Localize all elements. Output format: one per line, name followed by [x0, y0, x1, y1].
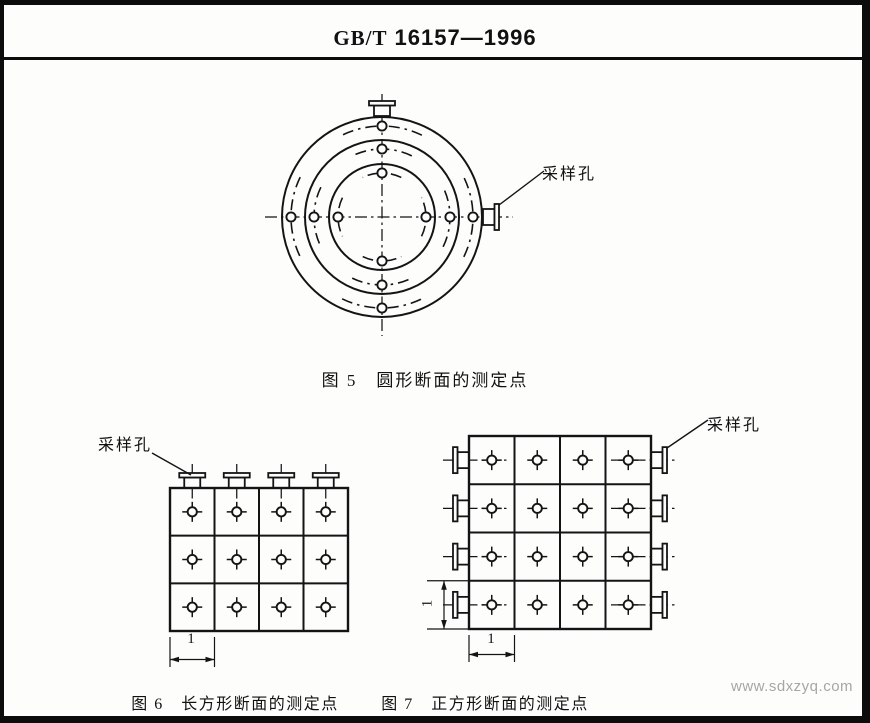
leader-line — [499, 171, 544, 205]
fig6-sampling-port-label: 采样孔 — [98, 431, 152, 455]
measurement-point — [377, 168, 386, 177]
sampling-port-icon — [651, 544, 667, 570]
sampling-port-icon — [453, 495, 469, 521]
measurement-point — [573, 498, 593, 518]
dimension-arrow — [506, 652, 515, 658]
measurement-point — [316, 502, 336, 522]
sampling-port-icon — [453, 447, 469, 473]
measurement-point — [527, 498, 547, 518]
measurement-point — [573, 595, 593, 615]
measurement-point — [271, 597, 291, 617]
sampling-port-icon — [453, 544, 469, 570]
measurement-point — [618, 498, 638, 518]
measurement-point — [316, 597, 336, 617]
measurement-point — [482, 547, 502, 567]
sampling-port-icon — [369, 101, 395, 116]
dimension-arrow — [206, 657, 215, 663]
standard-header: GB/T16157—1996 — [0, 25, 870, 51]
fig5-sampling-port-label: 采样孔 — [542, 160, 596, 184]
fig6-dimension-value: 1 — [178, 631, 204, 648]
top-border — [0, 0, 870, 5]
sampling-port-icon — [651, 592, 667, 618]
watermark: www.sdxzyq.com — [731, 678, 853, 695]
dimension-arrow — [170, 657, 179, 663]
sampling-port-icon — [651, 495, 667, 521]
measurement-point — [421, 212, 430, 221]
sampling-port-icon — [651, 447, 667, 473]
leader-line — [667, 420, 708, 448]
measurement-point — [182, 597, 202, 617]
fig7-dimension-left-value: 1 — [420, 591, 437, 617]
measurement-point — [618, 595, 638, 615]
measurement-point — [482, 450, 502, 470]
measurement-point — [445, 212, 454, 221]
sampling-port-icon — [453, 592, 469, 618]
measurement-point — [271, 502, 291, 522]
measurement-point — [573, 547, 593, 567]
document-page: GB/T16157—1996 采样孔 图 5 圆形断面的测定点 采样孔 1 图 … — [0, 0, 870, 723]
measurement-point — [377, 121, 386, 130]
standard-prefix: GB/T — [333, 26, 387, 50]
fig7-caption: 图 7 正方形断面的测定点 — [355, 690, 615, 714]
measurement-point — [618, 450, 638, 470]
measurement-point — [377, 280, 386, 289]
fig7-dimension-bottom-value: 1 — [478, 631, 504, 648]
dimension-arrow — [441, 581, 447, 590]
measurement-point — [316, 550, 336, 570]
measurement-point — [482, 595, 502, 615]
measurement-point — [227, 550, 247, 570]
sampling-port-icon — [483, 204, 499, 230]
standard-number: 16157—1996 — [395, 25, 537, 50]
fig7-sampling-port-label: 采样孔 — [707, 411, 761, 435]
figure5-circular-section-diagram — [255, 88, 595, 340]
sampling-port-icon — [313, 473, 339, 488]
figure6-rectangular-section-diagram — [95, 428, 375, 673]
measurement-point — [377, 303, 386, 312]
measurement-point — [227, 502, 247, 522]
measurement-point — [468, 212, 477, 221]
header-rule — [0, 57, 870, 60]
measurement-point — [573, 450, 593, 470]
sampling-port-icon — [179, 473, 205, 488]
fig5-caption: 图 5 圆形断面的测定点 — [255, 366, 595, 391]
sampling-port-icon — [268, 473, 294, 488]
measurement-point — [286, 212, 295, 221]
left-border — [0, 0, 4, 723]
measurement-point — [333, 212, 342, 221]
measurement-point — [182, 502, 202, 522]
leader-line — [152, 453, 191, 475]
measurement-point — [309, 212, 318, 221]
measurement-point — [527, 547, 547, 567]
fig6-caption: 图 6 长方形断面的测定点 — [100, 690, 370, 714]
measurement-point — [527, 595, 547, 615]
right-border — [862, 0, 870, 723]
measurement-point — [527, 450, 547, 470]
measurement-point — [377, 256, 386, 265]
measurement-point — [482, 498, 502, 518]
dimension-arrow — [441, 620, 447, 629]
measurement-point — [227, 597, 247, 617]
figure7-square-section-diagram — [415, 400, 775, 668]
measurement-point — [377, 144, 386, 153]
dimension-arrow — [469, 652, 478, 658]
measurement-point — [618, 547, 638, 567]
sampling-port-icon — [224, 473, 250, 488]
bottom-border — [0, 716, 870, 723]
measurement-point — [271, 550, 291, 570]
measurement-point — [182, 550, 202, 570]
